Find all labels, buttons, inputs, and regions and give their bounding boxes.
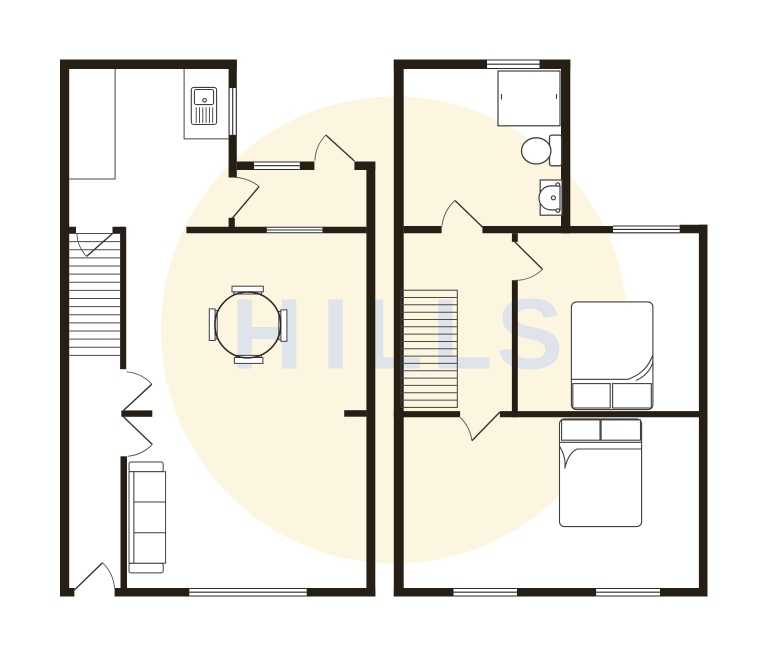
svg-text:I: I: [322, 279, 350, 391]
svg-text:S: S: [497, 279, 564, 391]
svg-text:H: H: [231, 279, 303, 391]
